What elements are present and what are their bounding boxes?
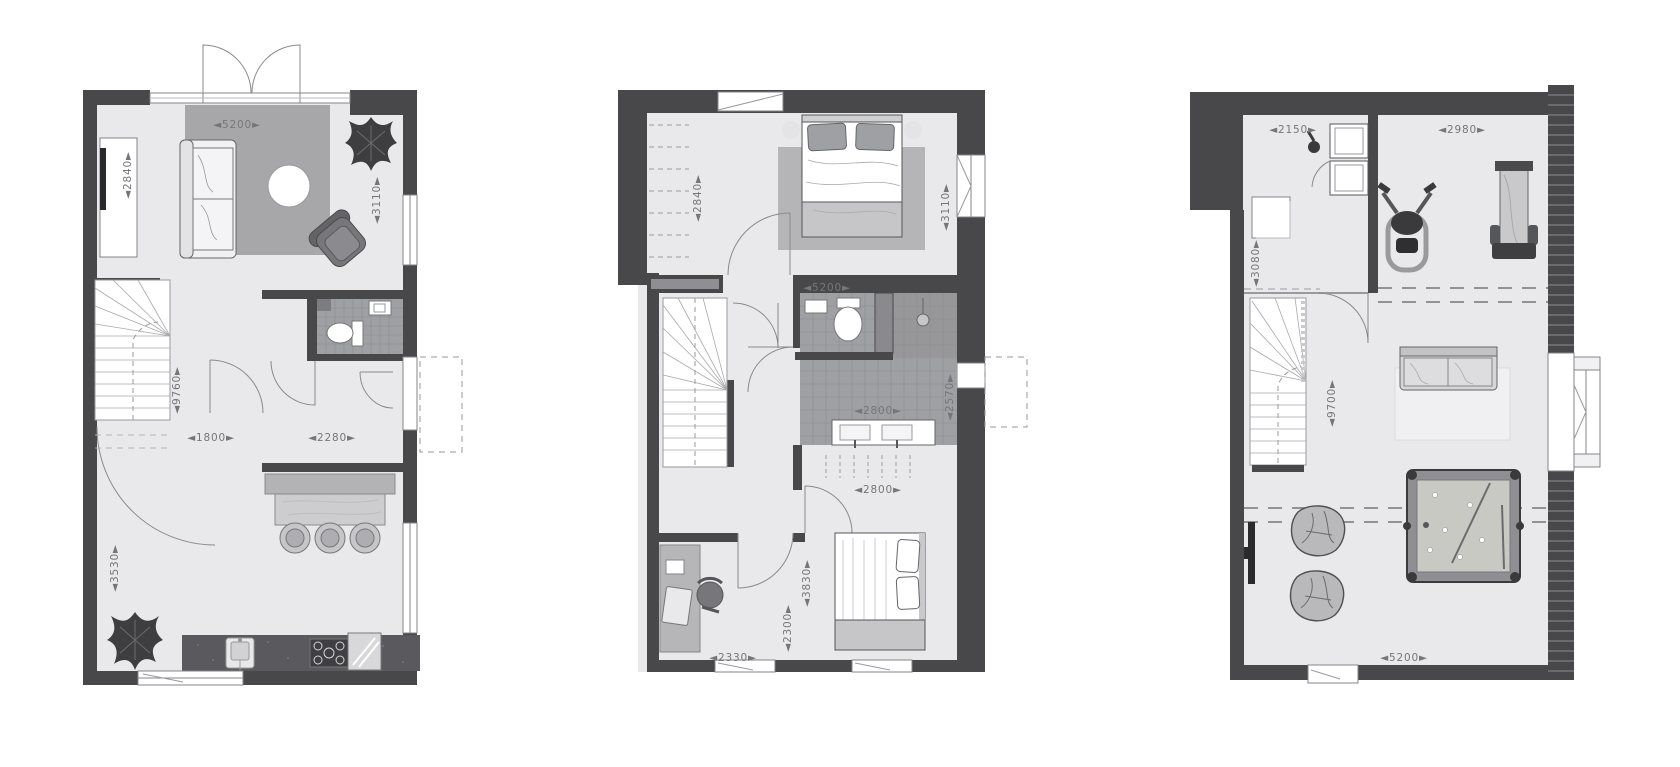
winder-stairs bbox=[1250, 298, 1306, 472]
bedside-lamp bbox=[782, 121, 800, 139]
laundry-wall bbox=[1368, 115, 1378, 293]
entrance-canopy bbox=[420, 357, 462, 452]
shower-head bbox=[917, 314, 929, 326]
pouf bbox=[1291, 506, 1344, 556]
sofa bbox=[1400, 347, 1497, 390]
sideboard-tv bbox=[100, 138, 137, 257]
wc bbox=[317, 299, 403, 354]
sofa bbox=[180, 140, 236, 258]
kitchen-island bbox=[265, 474, 395, 525]
double-vanity bbox=[832, 420, 935, 448]
french-doors bbox=[150, 45, 350, 103]
laptop bbox=[662, 586, 693, 625]
double-bed bbox=[802, 115, 902, 237]
attic-floor-plan: ◄2150►◄2980►◄3080►◄9700►◄5200► bbox=[1190, 85, 1612, 685]
kitchen-counter bbox=[182, 633, 420, 671]
side-table bbox=[1252, 197, 1290, 238]
bathroom bbox=[795, 293, 957, 448]
fridge bbox=[348, 633, 381, 670]
kitchen-sink bbox=[226, 638, 254, 670]
shower-wall bbox=[875, 293, 893, 353]
notepad bbox=[666, 560, 684, 574]
first-floor-drawing bbox=[618, 90, 1038, 680]
bar-stools bbox=[280, 523, 380, 553]
bathroom-sink-small bbox=[805, 300, 827, 313]
bottom-window bbox=[1308, 665, 1358, 683]
wc-sink bbox=[369, 301, 391, 315]
double-bed-2 bbox=[835, 533, 925, 650]
ground-floor-drawing bbox=[83, 90, 417, 685]
first-floor-plan: ◄2840►◄3110►◄5200►◄2800►◄2570►◄2800►◄383… bbox=[618, 90, 985, 680]
winder-stairs bbox=[663, 298, 727, 467]
attic-floor-drawing bbox=[1190, 85, 1612, 685]
window-canopy bbox=[985, 357, 1027, 427]
dormer-window bbox=[1548, 353, 1600, 471]
pool-table bbox=[1403, 470, 1524, 582]
toilet bbox=[834, 298, 862, 341]
ground-floor-plan: ◄5200►◄2840►◄3110►◄9760►◄1800►◄2280►◄353… bbox=[83, 90, 417, 685]
stove bbox=[310, 639, 348, 667]
pouf-2 bbox=[1290, 571, 1343, 621]
floor-plan-sheet: ◄5200►◄2840►◄3110►◄9760►◄1800►◄2280►◄353… bbox=[0, 0, 1680, 767]
bedside-lamp bbox=[904, 121, 922, 139]
round-coffee-table bbox=[268, 165, 310, 207]
